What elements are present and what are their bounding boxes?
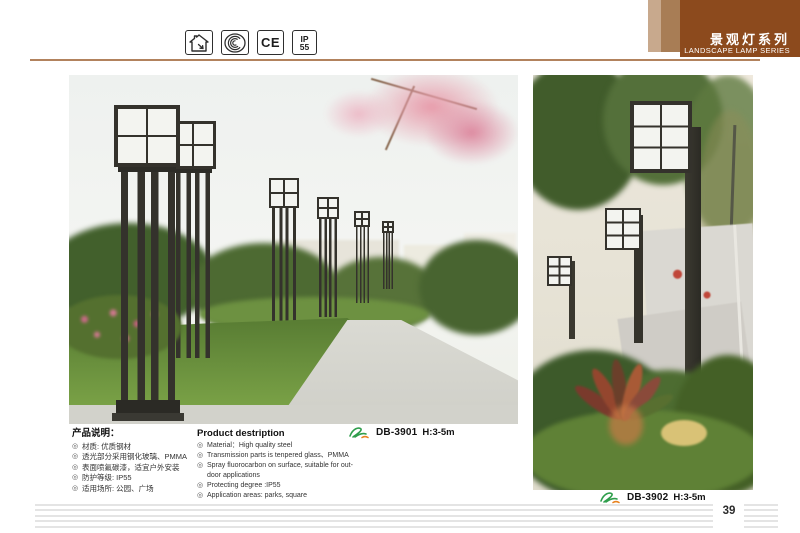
lamp-head — [547, 256, 572, 286]
bullet-icon: ◎ — [72, 484, 78, 495]
lamp-head — [317, 197, 339, 219]
bullet-icon: ◎ — [197, 481, 203, 491]
spec-item: ◎适用场所: 公园、广场 — [72, 484, 194, 495]
ccc-mark — [221, 30, 249, 55]
product-description-cn: 产品说明： ◎材质: 优质钢材 ◎透光部分采用钢化玻璃、PMMA ◎表面喷氟碳漆… — [72, 429, 194, 494]
lamp-posts — [272, 208, 296, 333]
lamp-head — [269, 178, 299, 208]
model-label-2: DB-3902 H:3-5m — [598, 490, 706, 505]
lamp-posts — [121, 172, 175, 400]
description-heading-en: Product destription — [197, 429, 359, 439]
spec-text: 材质: 优质钢材 — [82, 442, 131, 451]
page-number: 39 — [716, 505, 742, 517]
footer-rule — [35, 520, 713, 522]
footer-rule — [744, 526, 778, 528]
footer-rule — [744, 520, 778, 522]
spec-item: ◎防护等级: IP55 — [72, 473, 194, 484]
spec-item: ◎Protecting degree :IP55 — [197, 481, 359, 491]
footer-rule-group-left — [35, 504, 713, 528]
brand-logo-icon — [598, 490, 622, 505]
lamp-head — [605, 208, 641, 250]
series-title-en: LANDSCAPE LAMP SERIES — [640, 46, 790, 55]
spec-item: ◎Spray fluorocarbon on surface, suitable… — [197, 461, 359, 481]
lamp-posts — [319, 219, 337, 317]
spec-text: 适用场所: 公园、广场 — [82, 484, 154, 493]
product-description-en: Product destription ◎Material：High quali… — [197, 429, 359, 501]
model-label-1: DB-3901 H:3-5m — [347, 425, 455, 440]
foliage-bright — [533, 410, 753, 490]
spec-text: Protecting degree :IP55 — [207, 482, 281, 489]
bullet-icon: ◎ — [72, 473, 78, 484]
ccc-icon — [223, 32, 247, 54]
bullet-icon: ◎ — [197, 451, 203, 461]
house-arrow-icon — [188, 33, 210, 53]
spec-item: ◎Application areas: parks, square — [197, 491, 359, 501]
bullet-icon: ◎ — [72, 442, 78, 453]
spec-text: Spray fluorocarbon on surface, suitable … — [207, 462, 353, 479]
header-rule — [30, 59, 760, 61]
lamp-head — [114, 105, 180, 167]
lamp-head — [354, 211, 370, 227]
ce-label: CE — [261, 35, 280, 50]
lamp-posts — [356, 227, 369, 303]
footer-rule-group-right — [744, 504, 778, 528]
spec-text: 表面喷氟碳漆，适宜户外安装 — [82, 463, 180, 472]
spec-item: ◎Material：High quality steel — [197, 441, 359, 451]
bullet-icon: ◎ — [72, 452, 78, 463]
description-heading-cn: 产品说明： — [72, 429, 194, 440]
ip-label-line2: 55 — [300, 43, 309, 51]
footer-rule — [35, 509, 713, 511]
certification-row: CE IP 55 — [185, 30, 317, 55]
model-height: H:3-5m — [673, 492, 705, 503]
ce-mark: CE — [257, 30, 284, 55]
model-number: DB-3902 — [627, 492, 668, 503]
bullet-icon: ◎ — [197, 441, 203, 451]
photo-single-lamp — [533, 75, 753, 490]
spec-item: ◎表面喷氟碳漆，适宜户外安装 — [72, 463, 194, 474]
spec-item: ◎Transmission parts is tenpered glass、PM… — [197, 451, 359, 461]
bullet-icon: ◎ — [197, 491, 203, 501]
spec-text: 防护等级: IP55 — [82, 473, 132, 482]
spec-text: Material：High quality steel — [207, 442, 292, 449]
lamp-base-plinth — [112, 413, 184, 421]
safety-house-mark — [185, 30, 213, 55]
blossom — [424, 100, 518, 165]
photo-park-lamps — [69, 75, 518, 424]
lamp-posts — [383, 233, 393, 289]
footer-rule — [744, 509, 778, 511]
ip55-mark: IP 55 — [292, 30, 317, 55]
footer-rule — [744, 504, 778, 506]
bullet-icon: ◎ — [72, 463, 78, 474]
brand-logo-icon — [347, 425, 371, 440]
bullet-icon: ◎ — [197, 461, 203, 471]
spec-text: Application areas: parks, square — [207, 492, 307, 499]
lamp-base — [116, 400, 180, 413]
footer-rule — [35, 504, 713, 506]
blossom — [324, 90, 394, 138]
spec-item: ◎材质: 优质钢材 — [72, 442, 194, 453]
catalog-page: CE IP 55 景观灯系列 LANDSCAPE LAMP SERIES — [0, 0, 800, 533]
plant-glow — [609, 405, 643, 445]
spec-text: Transmission parts is tenpered glass、PMM… — [207, 452, 349, 459]
footer-rule — [35, 526, 713, 528]
tree-canopy — [419, 240, 518, 335]
yellow-object — [661, 420, 707, 446]
spec-item: ◎透光部分采用钢化玻璃、PMMA — [72, 452, 194, 463]
footer-rule — [35, 515, 713, 517]
spec-text: 透光部分采用钢化玻璃、PMMA — [82, 452, 187, 461]
lamp-head — [630, 101, 692, 173]
model-height: H:3-5m — [422, 427, 454, 438]
footer-rule — [744, 515, 778, 517]
lamp-head — [382, 221, 394, 233]
model-number: DB-3901 — [376, 427, 417, 438]
